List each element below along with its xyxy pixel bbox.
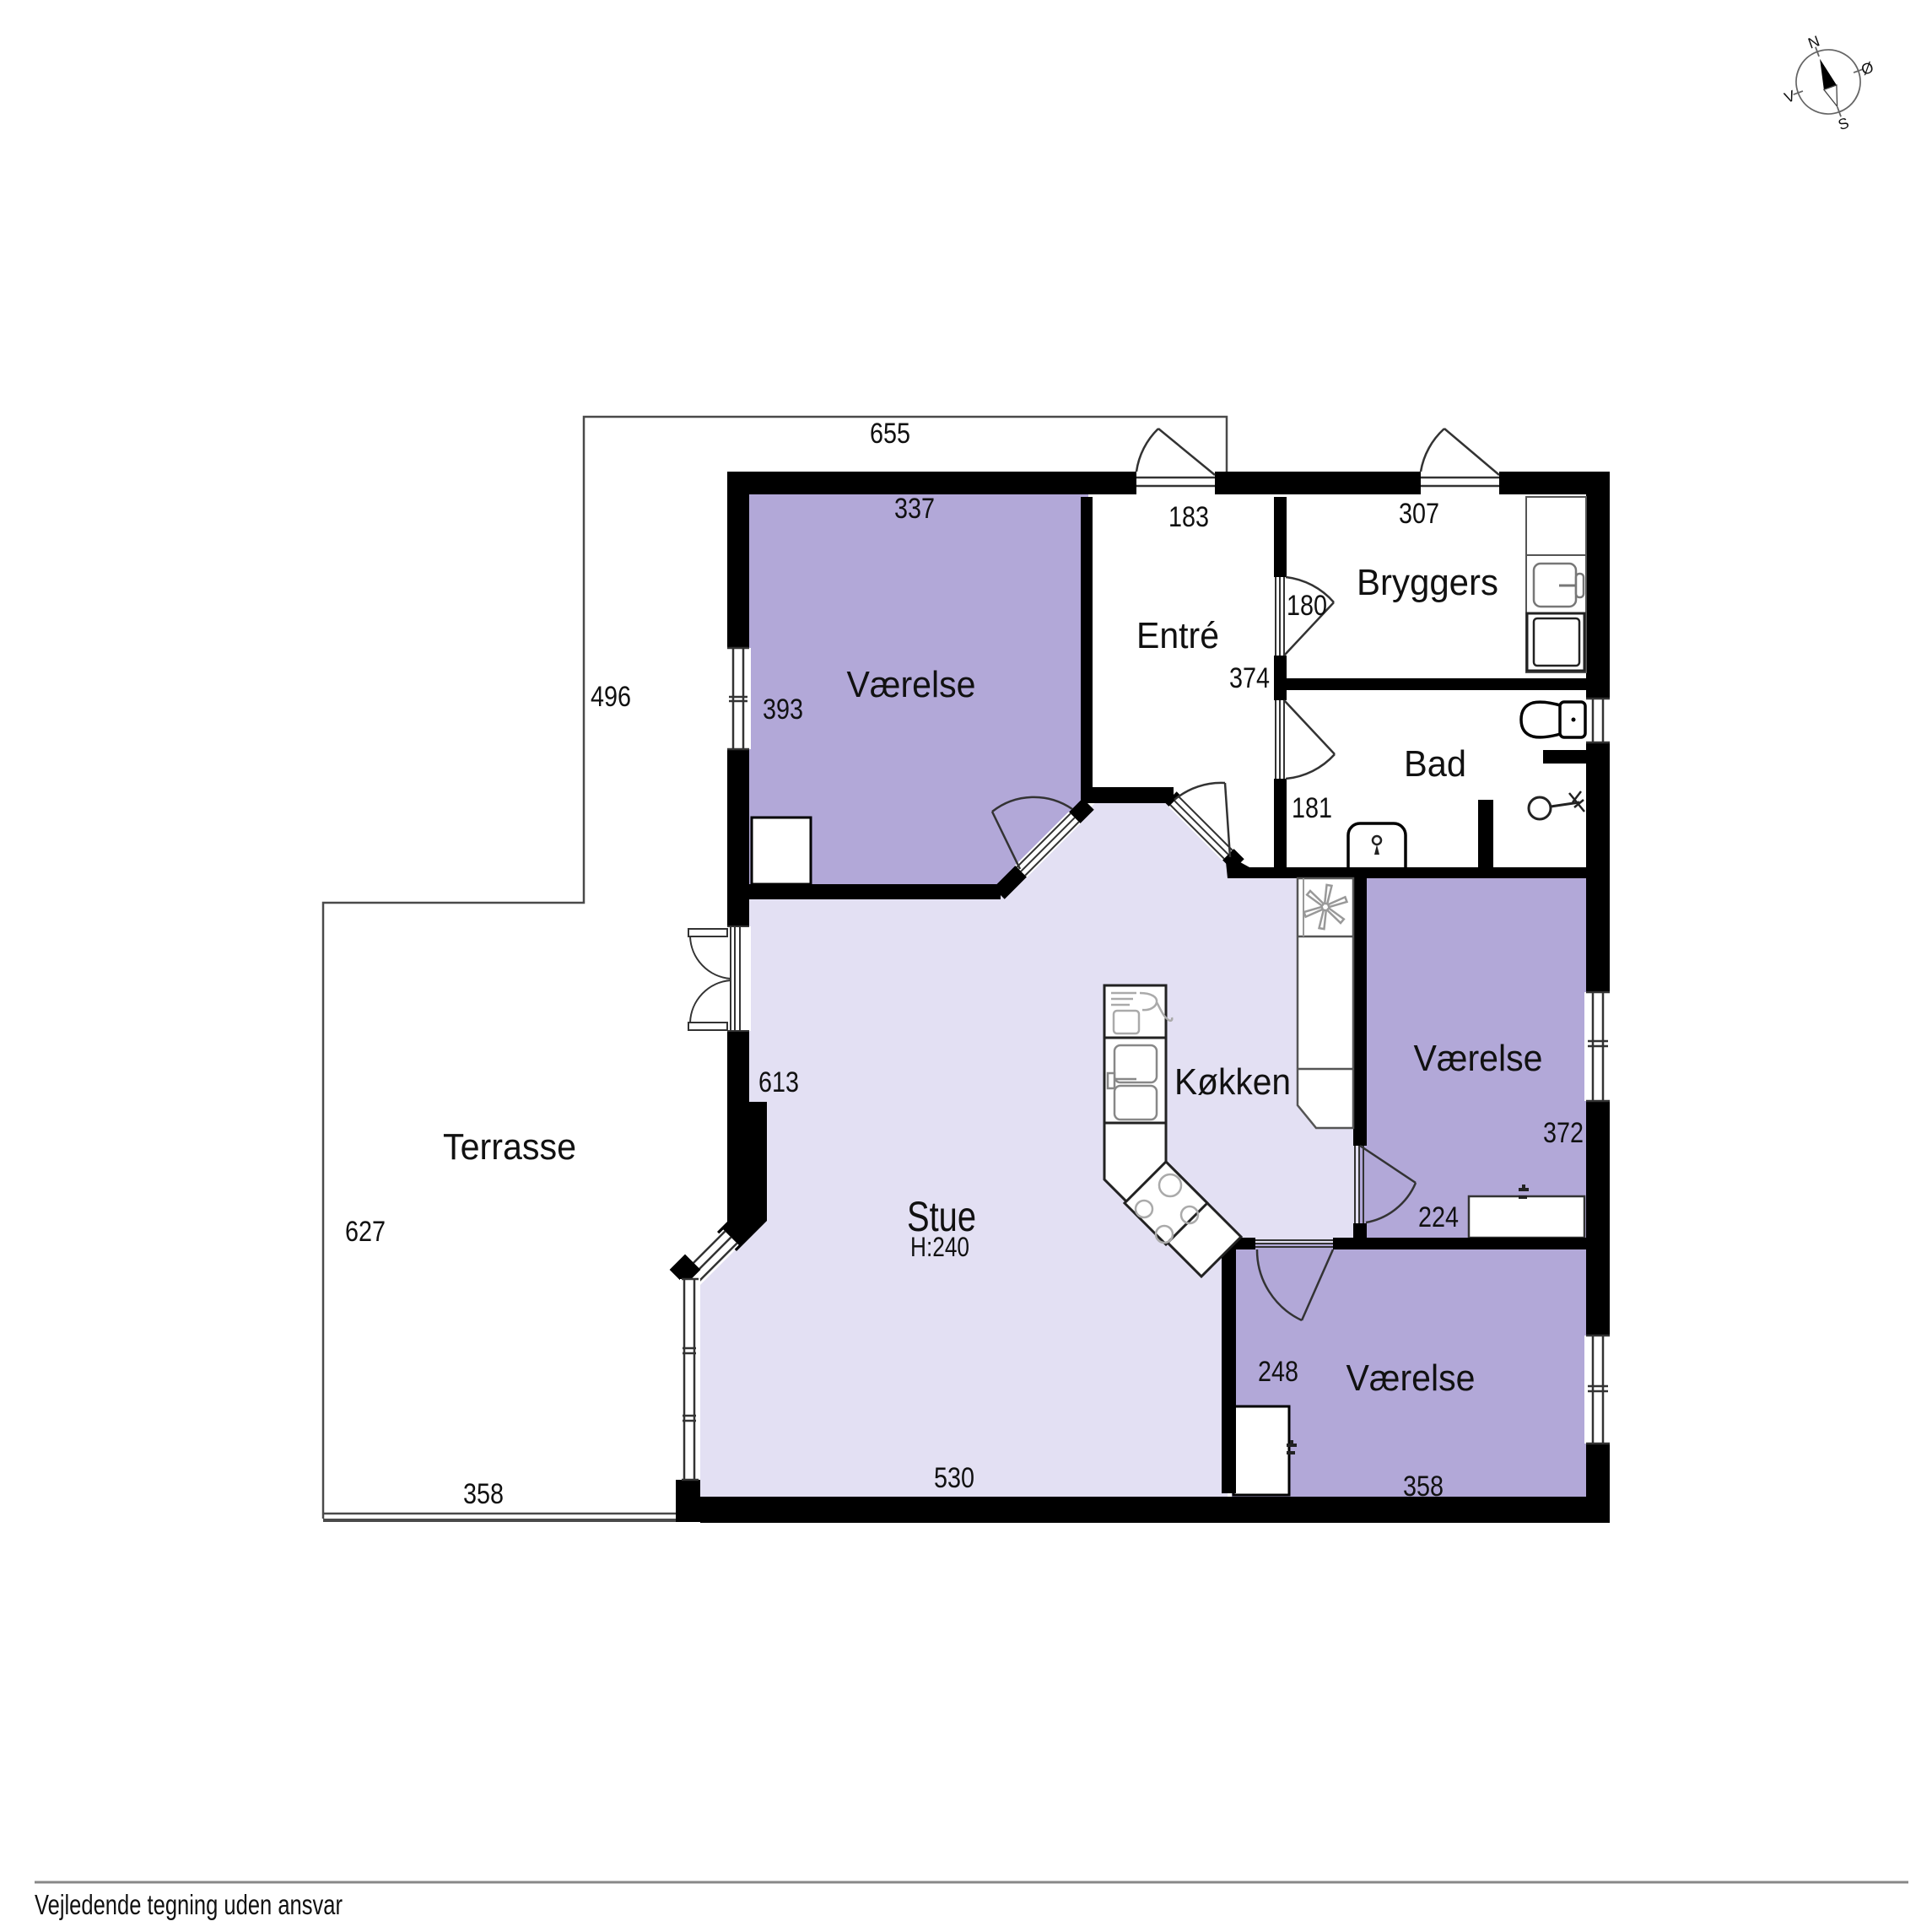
svg-text:Entré: Entré [1136,615,1219,656]
svg-text:Terrasse: Terrasse [443,1126,576,1168]
svg-text:248: 248 [1258,1356,1298,1388]
svg-text:224: 224 [1418,1201,1459,1233]
svg-text:337: 337 [894,493,935,525]
svg-text:372: 372 [1543,1117,1584,1149]
svg-text:613: 613 [758,1066,799,1098]
svg-text:181: 181 [1292,792,1332,824]
svg-text:180: 180 [1287,590,1327,622]
svg-text:Vejledende tegning uden ansvar: Vejledende tegning uden ansvar [35,1889,343,1920]
svg-text:Bryggers: Bryggers [1357,562,1498,603]
svg-text:H:240: H:240 [910,1232,969,1262]
svg-text:Værelse: Værelse [847,664,976,705]
svg-text:496: 496 [591,681,631,713]
svg-text:Køkken: Køkken [1174,1061,1291,1103]
svg-text:358: 358 [463,1478,504,1510]
svg-text:374: 374 [1229,662,1270,694]
svg-text:Bad: Bad [1404,743,1466,785]
svg-text:307: 307 [1399,498,1439,530]
svg-text:358: 358 [1403,1471,1444,1503]
svg-text:655: 655 [870,418,910,450]
svg-text:Værelse: Værelse [1414,1038,1543,1079]
svg-text:Værelse: Værelse [1346,1357,1476,1399]
svg-text:530: 530 [934,1462,974,1494]
svg-text:183: 183 [1168,501,1209,533]
svg-text:627: 627 [345,1216,386,1248]
svg-text:393: 393 [763,693,803,726]
